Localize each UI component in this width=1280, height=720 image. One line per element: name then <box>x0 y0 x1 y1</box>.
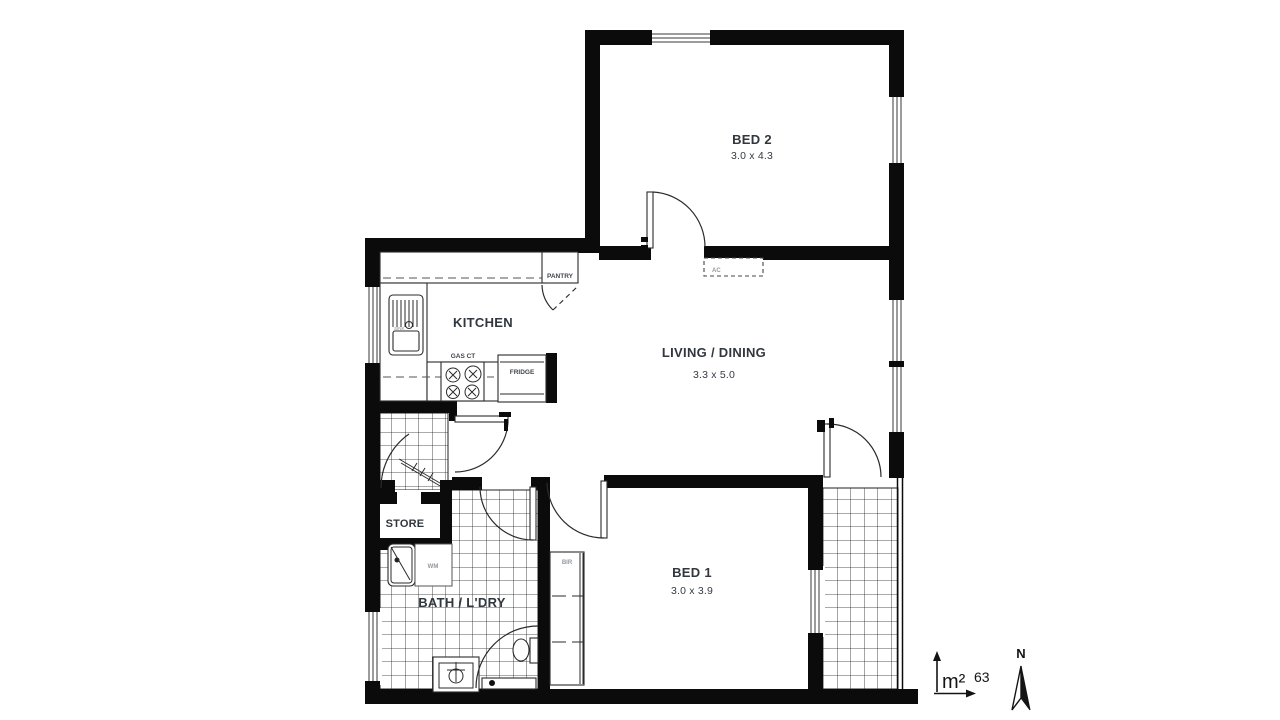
wall-bed1-top <box>604 475 822 488</box>
fridge-label: FRIDGE <box>510 369 535 376</box>
store-name: STORE <box>386 518 425 530</box>
north-label: N <box>1016 646 1025 661</box>
area-value: 63 <box>974 669 990 685</box>
canvas-background <box>0 0 1280 720</box>
bed1-dims: 3.0 x 3.9 <box>671 585 713 597</box>
wall-bath-bed1-divider <box>538 477 550 689</box>
washing-machine: WM <box>415 544 452 586</box>
sink-label: SINK <box>394 326 405 331</box>
wall-bed2-left <box>585 30 600 252</box>
fridge: FRIDGE <box>498 355 546 402</box>
pantry-label: PANTRY <box>547 273 574 280</box>
bed2-dims: 3.0 x 4.3 <box>731 150 773 162</box>
wall-bed2-divider-right <box>704 246 889 260</box>
wall-fridge-side <box>546 353 557 403</box>
robe-label: BIR <box>562 560 573 566</box>
toilet <box>513 638 538 663</box>
wall-bed2-top <box>585 30 903 45</box>
bed2-name: BED 2 <box>732 132 772 147</box>
ac-label: AC <box>712 268 721 274</box>
window-kitchen-left <box>363 283 382 367</box>
kitchen-sink: SINK <box>389 295 423 355</box>
window-bed1-right <box>806 566 825 637</box>
floor-plan-drawing: SINK GAS CT FRIDGE PANTRY <box>0 0 1280 720</box>
balcony-tiles <box>822 488 898 689</box>
living-name: LIVING / DINING <box>662 345 766 360</box>
wall-store-top-a <box>379 492 397 504</box>
window-bed2-right <box>887 93 906 167</box>
living-dims: 3.3 x 5.0 <box>693 369 735 381</box>
laundry-trough <box>388 544 415 586</box>
wall-kitchen-top <box>365 238 600 253</box>
bed1-name: BED 1 <box>672 565 712 580</box>
vanity <box>433 657 479 692</box>
built-in-robe: BIR <box>550 552 584 685</box>
wall-bath-top-left <box>452 477 482 490</box>
window-living-right <box>887 296 906 436</box>
wall-kitchen-entry <box>365 401 457 413</box>
bath-name: BATH / L'DRY <box>418 595 506 610</box>
cooktop-label: GAS CT <box>451 353 476 360</box>
area-unit: m² <box>942 671 966 693</box>
washing-machine-label: WM <box>428 564 439 570</box>
kitchen-name: KITCHEN <box>453 315 513 330</box>
window-bed2-top <box>648 28 714 47</box>
window-bath-left <box>363 608 382 685</box>
floor-plan-page: SINK GAS CT FRIDGE PANTRY <box>0 0 1280 720</box>
air-conditioner: AC <box>704 258 763 276</box>
